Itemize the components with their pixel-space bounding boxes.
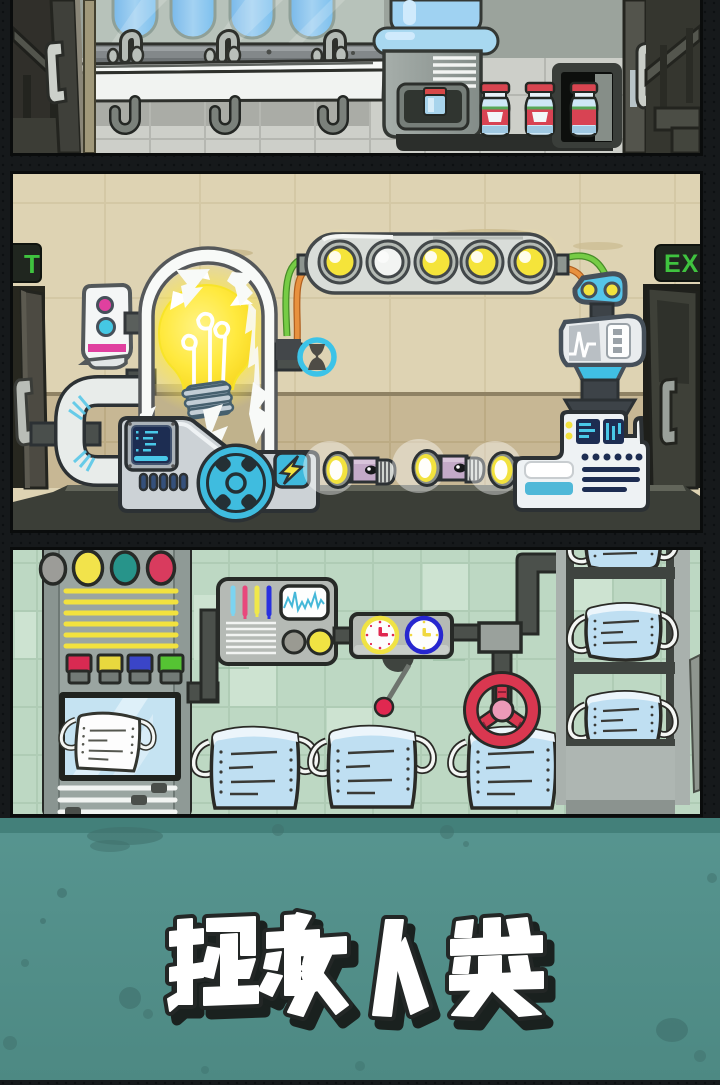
svg-text:T: T xyxy=(24,249,40,279)
svg-text:EX: EX xyxy=(664,250,699,278)
